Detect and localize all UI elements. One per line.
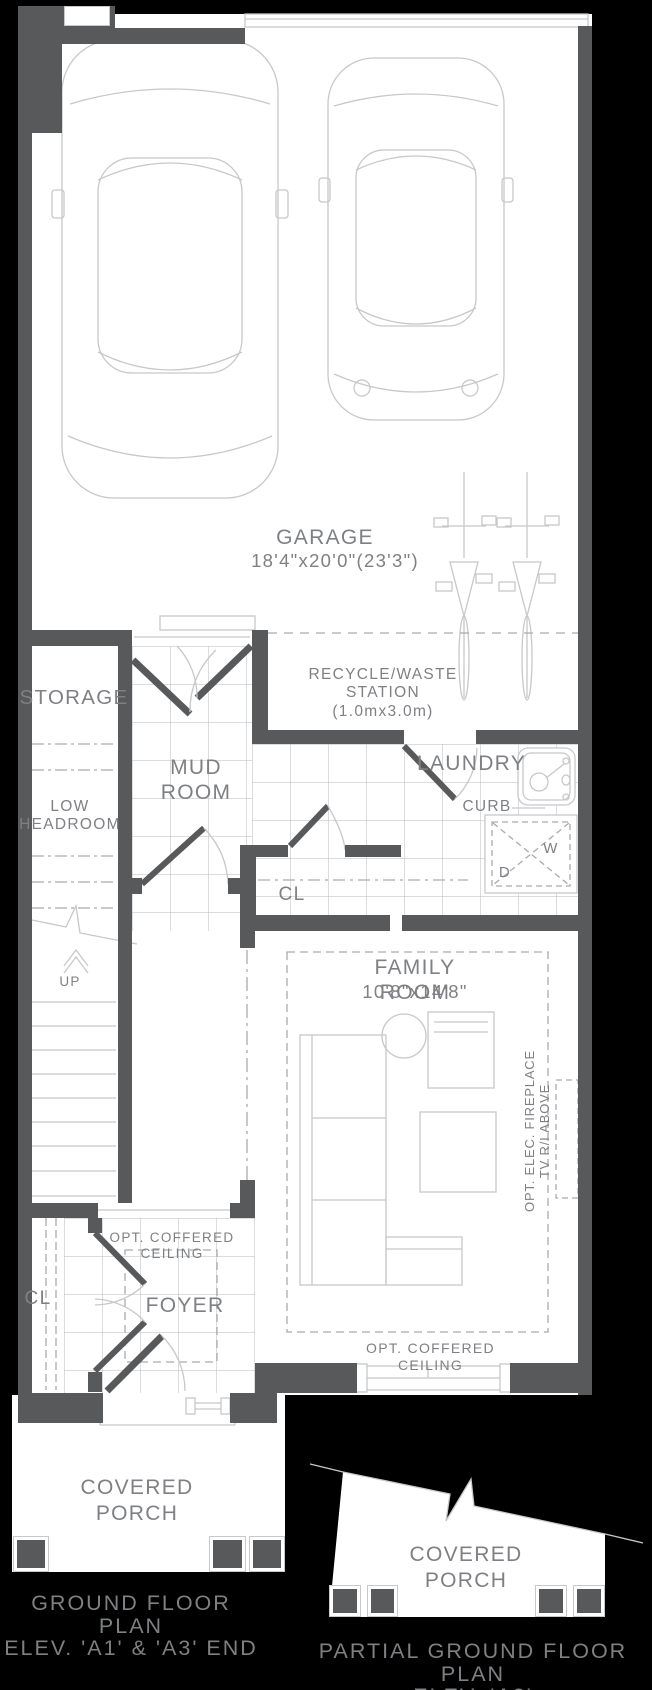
closet-hall-label: CL	[272, 884, 312, 906]
fireplace-note: OPT. ELEC. FIREPLACE TV R/I ABOVE	[522, 1046, 558, 1216]
round-table	[382, 1014, 426, 1058]
wall-main-left	[240, 915, 390, 931]
wall-laundry-right	[476, 730, 592, 744]
storage-label: STORAGE	[18, 686, 130, 710]
door-hall-family	[290, 806, 345, 850]
sofa	[300, 1035, 462, 1285]
porch-pillar	[249, 1536, 285, 1572]
garage-dims: 18'4"x20'0"(23'3")	[235, 550, 435, 572]
wall-closet-top-right	[345, 845, 401, 857]
mud-room-label: MUD ROOM	[148, 756, 244, 806]
wall-hall-a	[240, 915, 255, 948]
closet-foyer-label: CL	[18, 1288, 58, 1310]
wall-main-right	[402, 915, 592, 931]
wall-garage-mudroom	[18, 630, 132, 646]
plan-title-partial: PARTIAL GROUND FLOOR PLAN ELEV. 'A2'	[299, 1640, 647, 1690]
fireplace	[556, 1080, 578, 1198]
covered-porch-label: COVERED PORCH	[37, 1475, 237, 1528]
car-icon	[319, 58, 513, 420]
door-jamb-stub	[228, 878, 240, 894]
bicycle-icon	[497, 472, 559, 700]
covered-porch-partial-label: COVERED PORCH	[366, 1542, 566, 1595]
coffee-table	[420, 1112, 496, 1192]
wall-foyer-top-left	[18, 1203, 98, 1218]
garage-label: GARAGE	[243, 526, 407, 551]
porch-pillar	[13, 1536, 49, 1572]
door-garage-mudroom	[133, 646, 251, 714]
door-landing	[160, 616, 255, 630]
washer-label: W	[542, 840, 560, 858]
low-headroom-label: LOW HEADROOM	[16, 798, 124, 835]
garage-door	[245, 14, 588, 27]
closet-jamb-top	[88, 1218, 102, 1233]
laundry-label: LAUNDRY	[417, 752, 521, 777]
foyer-label: FOYER	[143, 1294, 227, 1319]
porch-pillar	[573, 1585, 605, 1617]
wall-stairs	[118, 646, 132, 1203]
recycle-station-label: RECYCLE/WASTE STATION (1.0mx3.0m)	[270, 666, 496, 721]
curb-label: CURB	[460, 798, 514, 816]
coffered-outline	[287, 952, 548, 1332]
wall-foyer-bottom-right	[230, 1393, 277, 1423]
coffered-ceiling-foyer-label: OPT. COFFERED CEILING	[108, 1230, 236, 1262]
pier-notch	[64, 6, 110, 26]
front-door	[107, 1336, 230, 1414]
up-label: UP	[48, 974, 92, 990]
porch-pillar	[209, 1536, 246, 1572]
wall-jamb-post	[252, 630, 268, 730]
floor-plan: GARAGE 18'4"x20'0"(23'3") RECYCLE/WASTE …	[0, 0, 652, 1690]
wall-laundry-left	[252, 730, 404, 744]
wall-foyer-top-right	[230, 1203, 255, 1218]
dryer-label: D	[496, 864, 514, 882]
wall-foyer-bottom-left	[18, 1393, 103, 1423]
wall-right	[578, 26, 592, 1395]
wall-top	[18, 28, 245, 44]
porch-pillar	[329, 1585, 361, 1617]
coffered-ceiling-family-label: OPT. COFFERED CEILING	[338, 1340, 523, 1373]
car-icon	[52, 40, 288, 498]
sink-icon	[518, 748, 575, 805]
door-jamb-stub	[132, 878, 142, 894]
plan-title-main: GROUND FLOOR PLAN ELEV. 'A1' & 'A3' END	[0, 1592, 262, 1660]
family-room-dims: 10'8"x14'8"	[338, 981, 492, 1003]
door-hall-mudroom	[142, 828, 228, 884]
porch-slab	[100, 1397, 235, 1425]
armchair	[428, 1012, 494, 1088]
closet-jamb-bottom	[88, 1372, 102, 1392]
